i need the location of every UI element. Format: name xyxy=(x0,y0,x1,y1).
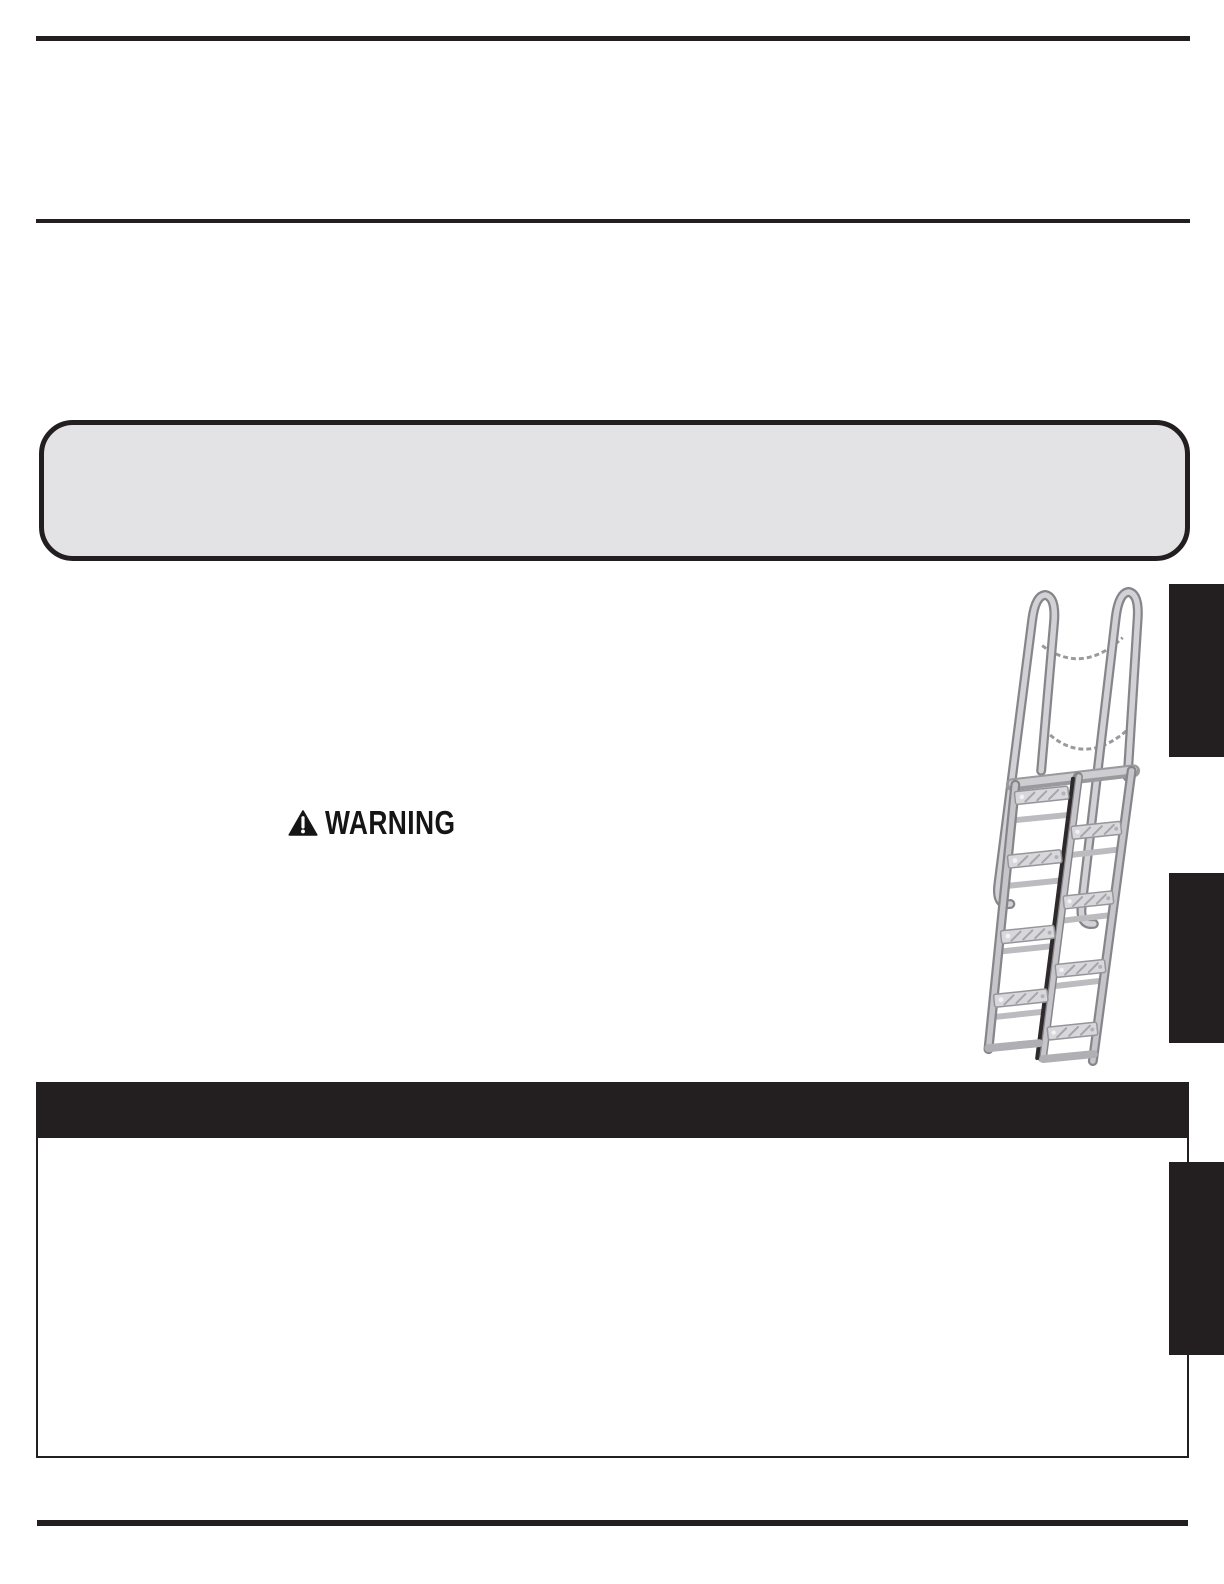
warning-heading: WARNING xyxy=(288,806,488,840)
top-rule-secondary xyxy=(36,219,1190,223)
stair-frame xyxy=(988,770,1133,1061)
alternating-tread-stair-illustration xyxy=(982,580,1152,1067)
side-tab-3 xyxy=(1169,1162,1224,1355)
warning-triangle-icon xyxy=(288,809,318,837)
bottom-rule xyxy=(37,1520,1188,1526)
section-header-bar xyxy=(36,1082,1189,1136)
warning-label: WARNING xyxy=(325,806,455,840)
manual-page: WARNING xyxy=(0,0,1224,1584)
safety-chain-lower xyxy=(1050,727,1131,749)
side-tab-1 xyxy=(1169,584,1224,757)
side-tab-2 xyxy=(1169,873,1224,1043)
top-rule-primary xyxy=(36,36,1190,41)
right-handrail xyxy=(1081,592,1137,924)
callout-box xyxy=(39,420,1190,561)
content-box xyxy=(36,1136,1189,1458)
